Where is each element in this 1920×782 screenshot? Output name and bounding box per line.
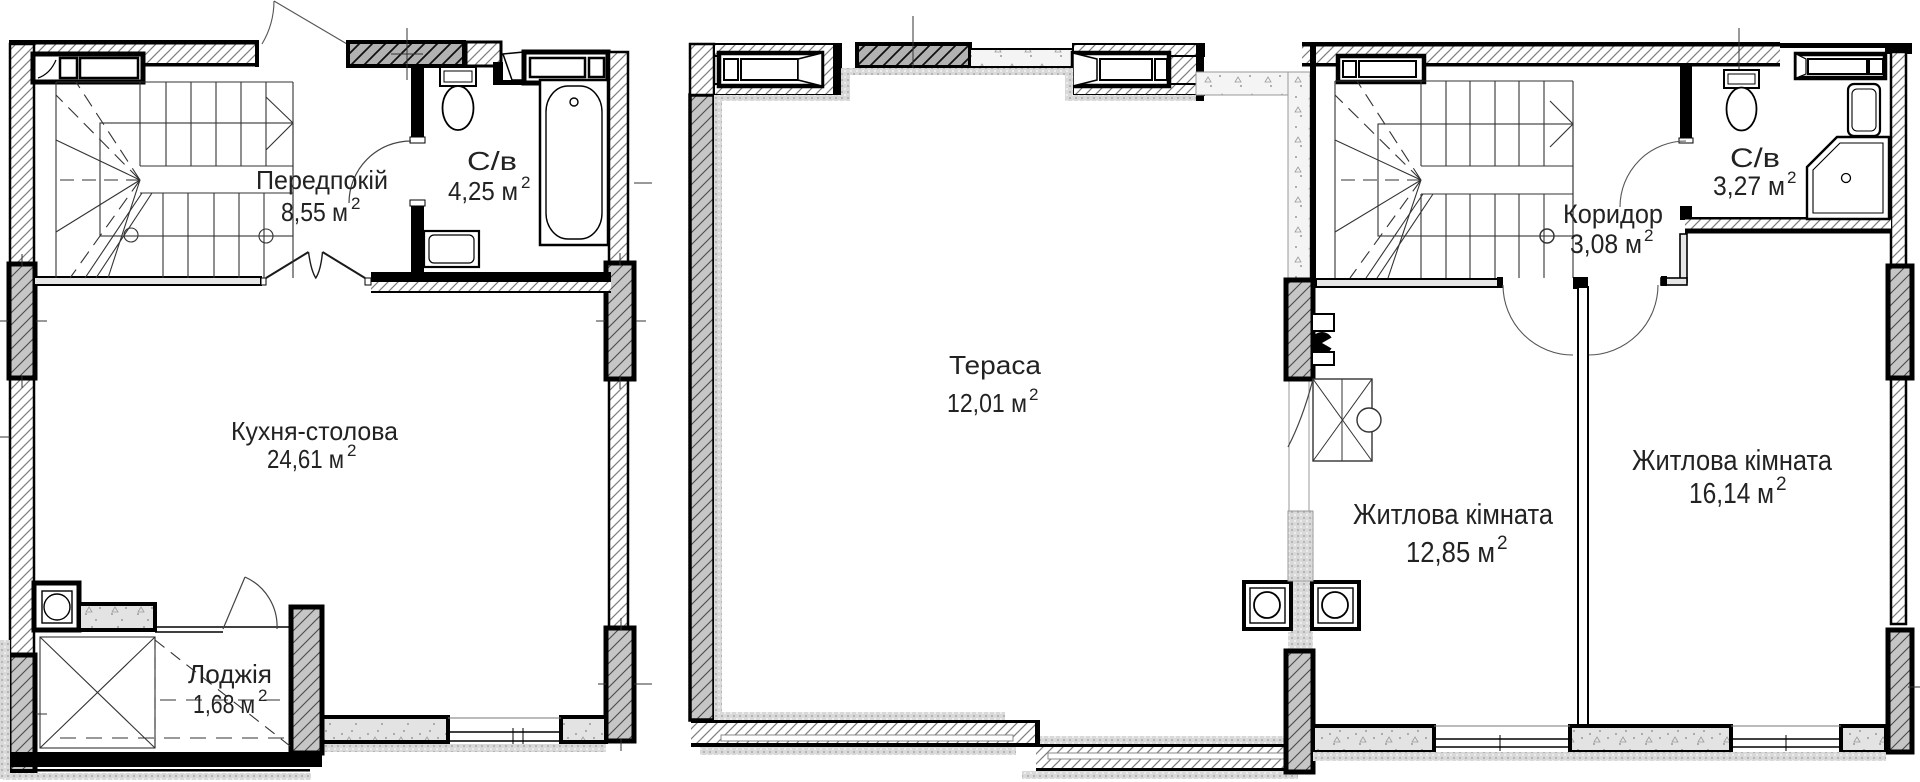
svg-text:С/в: С/в (1730, 143, 1780, 173)
svg-text:2: 2 (351, 194, 360, 213)
svg-text:Лоджія: Лоджія (188, 659, 272, 689)
svg-text:3,08 м: 3,08 м (1570, 229, 1642, 259)
svg-text:Житлова кімната: Житлова кімната (1632, 445, 1833, 477)
svg-text:Житлова кімната: Житлова кімната (1353, 499, 1554, 531)
svg-text:4,25 м: 4,25 м (448, 176, 518, 206)
svg-text:16,14 м: 16,14 м (1689, 478, 1774, 510)
svg-text:2: 2 (258, 686, 267, 705)
svg-text:Тераса: Тераса (949, 350, 1042, 380)
svg-text:2: 2 (1644, 226, 1653, 245)
svg-text:3,27 м: 3,27 м (1713, 171, 1785, 201)
svg-text:2: 2 (1497, 533, 1508, 554)
svg-text:8,55 м: 8,55 м (281, 197, 348, 227)
svg-text:12,85 м: 12,85 м (1406, 537, 1495, 569)
svg-text:С/в: С/в (467, 146, 517, 176)
svg-text:1,68 м: 1,68 м (193, 689, 255, 719)
svg-text:2: 2 (521, 173, 530, 192)
svg-text:2: 2 (347, 441, 356, 460)
svg-text:12,01 м: 12,01 м (947, 388, 1027, 418)
svg-text:2: 2 (1787, 168, 1796, 187)
svg-text:2: 2 (1029, 385, 1038, 404)
svg-text:Кухня-столова: Кухня-столова (231, 416, 399, 446)
svg-text:24,61 м: 24,61 м (267, 444, 344, 474)
svg-text:Коридор: Коридор (1563, 199, 1663, 229)
svg-text:2: 2 (1776, 474, 1787, 495)
svg-text:Передпокій: Передпокій (256, 165, 388, 195)
